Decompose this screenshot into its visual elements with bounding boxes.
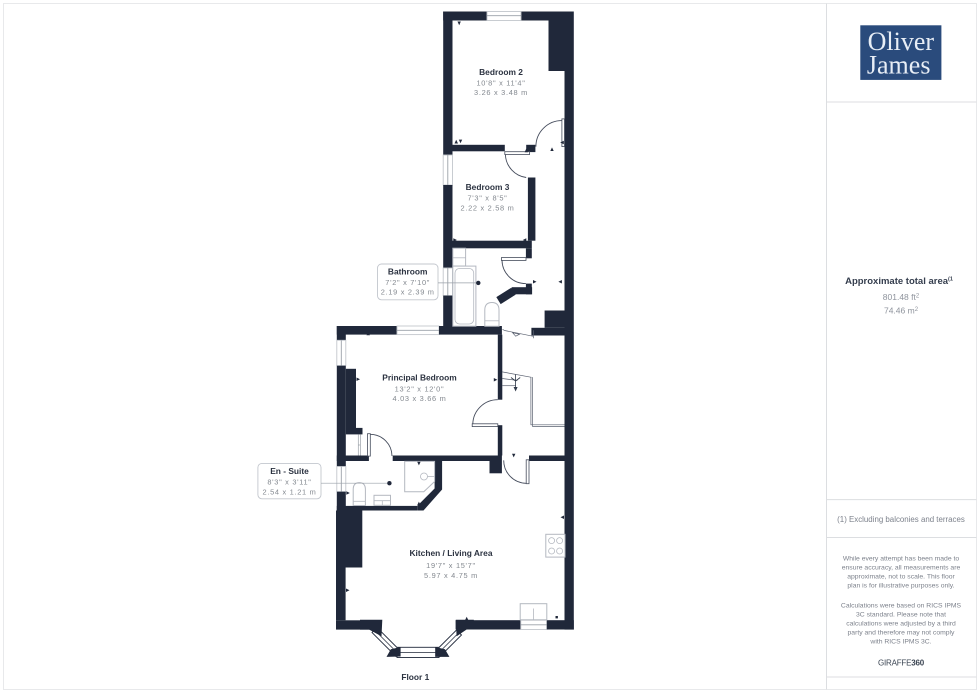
svg-text:calculations were adjusted by: calculations were adjusted by a third: [846, 621, 956, 628]
svg-text:2.19 x 2.39 m: 2.19 x 2.39 m: [381, 288, 435, 297]
svg-text:Principal Bedroom: Principal Bedroom: [382, 373, 456, 383]
svg-text:(1) Excluding balconies and te: (1) Excluding balconies and terraces: [837, 515, 965, 524]
svg-text:8'3" x 3'11": 8'3" x 3'11": [267, 477, 311, 486]
svg-text:801.48 ft2: 801.48 ft2: [883, 292, 920, 302]
svg-text:plan is for illustrative purpo: plan is for illustrative purposes only.: [847, 583, 954, 590]
svg-text:7'2" x 7'10": 7'2" x 7'10": [385, 278, 430, 287]
svg-text:En - Suite: En - Suite: [270, 466, 309, 476]
svg-text:Kitchen / Living Area: Kitchen / Living Area: [410, 548, 493, 558]
svg-text:5.97 x 4.75 m: 5.97 x 4.75 m: [424, 571, 478, 580]
svg-text:party and therefore may not co: party and therefore may not comply: [848, 630, 956, 637]
svg-text:10'8" x 11'4": 10'8" x 11'4": [476, 78, 525, 87]
svg-text:Bathroom: Bathroom: [388, 267, 428, 277]
svg-text:3.26 x 3.48 m: 3.26 x 3.48 m: [474, 88, 528, 97]
svg-text:Approximate total area(1: Approximate total area(1: [845, 276, 953, 287]
svg-text:4.03 x 3.66 m: 4.03 x 3.66 m: [393, 394, 447, 403]
svg-text:Bedroom 3: Bedroom 3: [466, 182, 510, 192]
svg-text:13'2" x 12'0": 13'2" x 12'0": [395, 385, 445, 394]
svg-text:approximate, not to scale. Thi: approximate, not to scale. This floor: [847, 574, 955, 581]
svg-text:7'3" x 8'5": 7'3" x 8'5": [467, 193, 507, 202]
svg-text:Calculations were based on RIC: Calculations were based on RICS IPMS: [841, 603, 962, 610]
svg-text:ensure accuracy, all measureme: ensure accuracy, all measurements are: [842, 565, 961, 572]
svg-text:2.22 x 2.58 m: 2.22 x 2.58 m: [461, 204, 515, 213]
svg-text:2.54 x 1.21 m: 2.54 x 1.21 m: [263, 487, 317, 496]
svg-text:While every attempt has been m: While every attempt has been made to: [843, 556, 960, 563]
svg-text:GIRAFFE360: GIRAFFE360: [878, 659, 925, 668]
svg-text:Bedroom 2: Bedroom 2: [479, 67, 523, 77]
svg-text:James: James: [867, 51, 931, 80]
svg-text:Floor 1: Floor 1: [401, 672, 429, 682]
svg-text:19'7" x 15'7": 19'7" x 15'7": [426, 561, 476, 570]
svg-text:with RICS IPMS 3C.: with RICS IPMS 3C.: [869, 639, 931, 646]
svg-text:3C standard. Please note that: 3C standard. Please note that: [856, 612, 946, 619]
svg-text:74.46 m2: 74.46 m2: [884, 306, 919, 316]
